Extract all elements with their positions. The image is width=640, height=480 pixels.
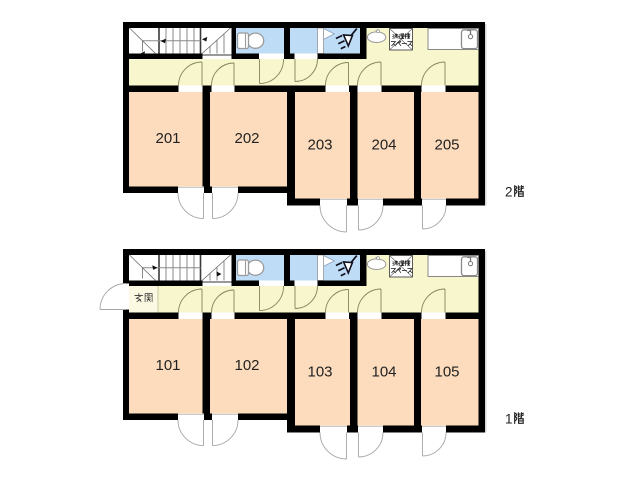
svg-text:202: 202 bbox=[234, 130, 259, 147]
svg-text:2: 2 bbox=[505, 185, 513, 200]
svg-text:203: 203 bbox=[307, 136, 332, 153]
svg-text:103: 103 bbox=[307, 363, 332, 380]
svg-text:102: 102 bbox=[234, 357, 259, 374]
svg-text:101: 101 bbox=[155, 357, 180, 374]
svg-text:105: 105 bbox=[434, 363, 459, 380]
svg-text:205: 205 bbox=[434, 136, 459, 153]
svg-text:104: 104 bbox=[371, 363, 396, 380]
svg-text:201: 201 bbox=[155, 130, 180, 147]
svg-text:1: 1 bbox=[505, 412, 513, 427]
svg-text:204: 204 bbox=[371, 136, 396, 153]
